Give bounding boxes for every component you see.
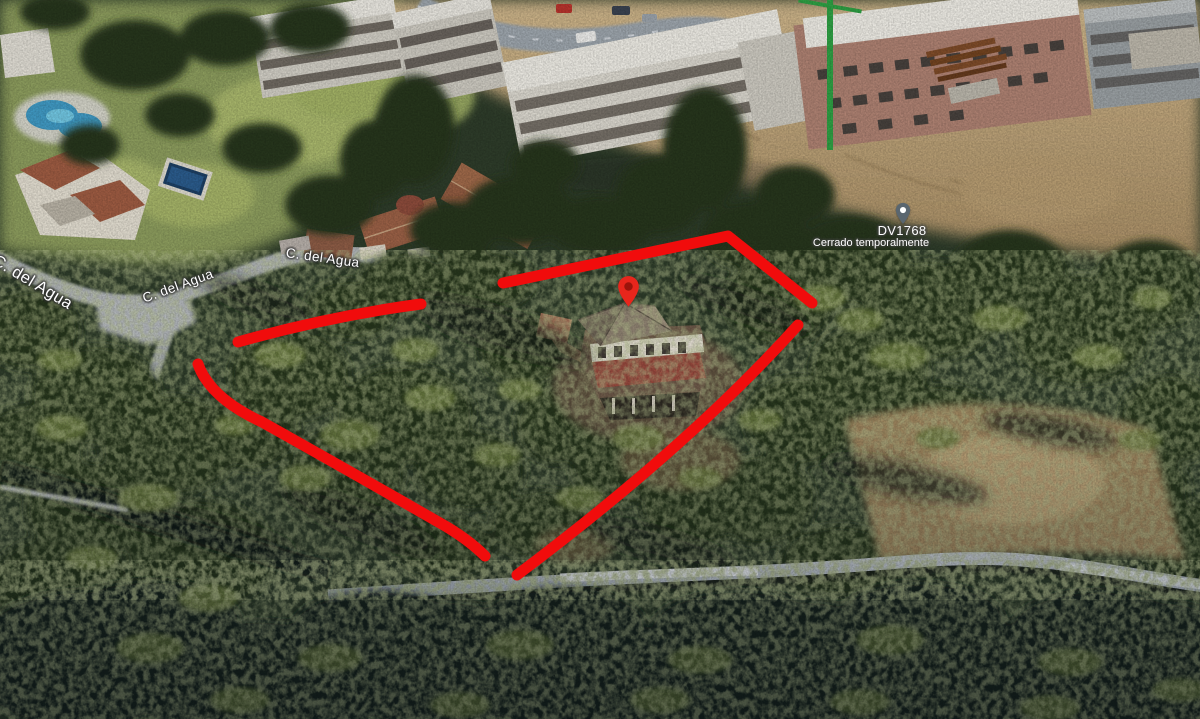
map-viewport[interactable]: C. del Agua C. del Agua C. del Agua DV17… <box>0 0 1200 719</box>
closed-place-pin-icon[interactable] <box>895 202 911 225</box>
destination-pin-icon[interactable] <box>617 275 640 308</box>
poi-status[interactable]: Cerrado temporalmente <box>806 237 936 249</box>
poi-name[interactable]: DV1768 <box>852 223 952 238</box>
aerial-imagery <box>0 0 1200 719</box>
